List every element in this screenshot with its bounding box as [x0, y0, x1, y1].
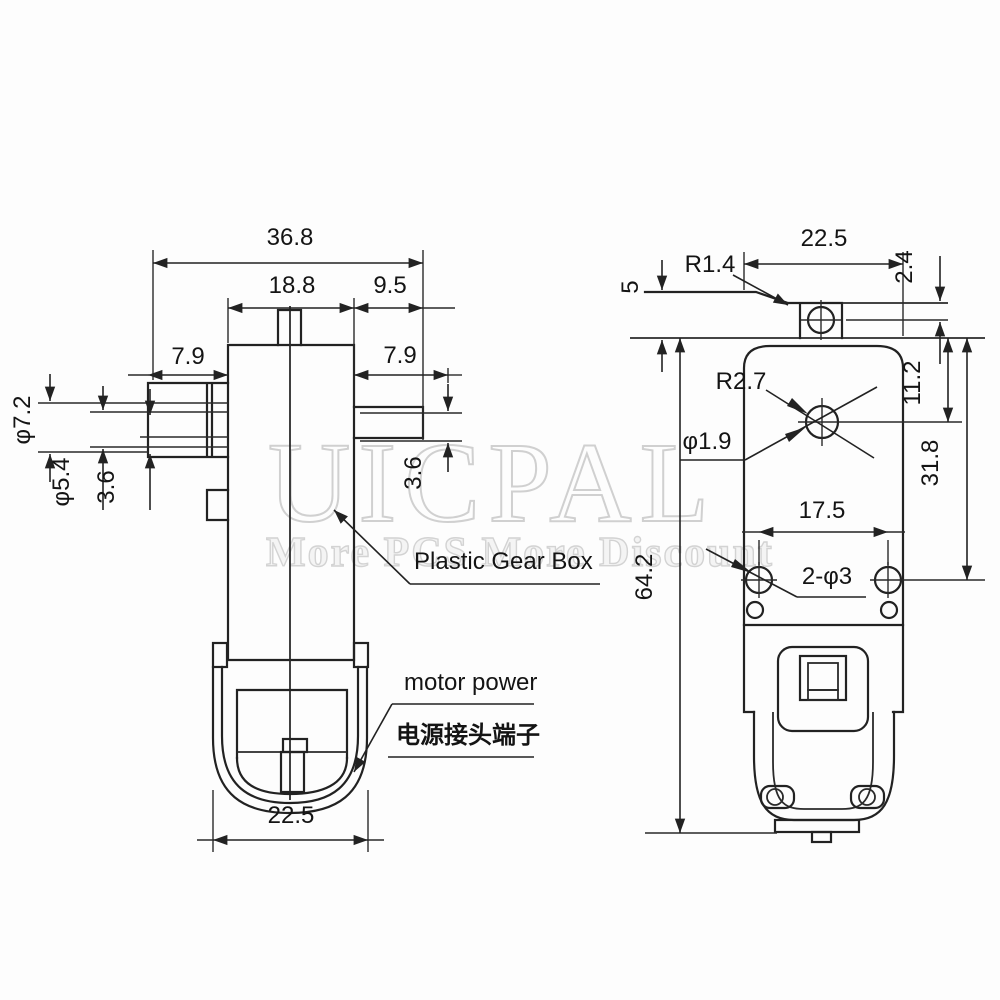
dim-body-width: 22.5	[801, 225, 848, 252]
side-view-labels: Plastic Gear Box motor power 电源接头端子	[334, 510, 600, 772]
label-motor-power-cn: 电源接头端子	[396, 722, 540, 749]
dim-shaft-flat-left: 3.6	[93, 470, 120, 503]
dim-hole-offset: 2.4	[891, 250, 918, 283]
dim-gearbox-width: 18.8	[269, 272, 316, 299]
dim-total-height: 64.2	[631, 554, 658, 601]
dim-hole-to-top: 11.2	[899, 361, 926, 406]
dim-motor-width: 22.5	[268, 802, 315, 829]
technical-drawing-canvas: UICPAL More PCS More Discount	[0, 0, 1000, 1000]
dim-shaft-flat-right: 3.6	[400, 456, 427, 489]
dim-shaft-left-length: 7.9	[171, 343, 204, 370]
dim-tab-fillet: R1.4	[685, 251, 736, 278]
dim-shaft-hole-dia: φ1.9	[683, 428, 732, 455]
dim-mount-holes: 2-φ3	[802, 563, 852, 590]
dim-shaft-right-length: 7.9	[383, 342, 416, 369]
watermark-brand: UICPAL	[268, 419, 717, 546]
dim-holes-to-top: 31.8	[917, 440, 944, 487]
dim-right-step: 9.5	[373, 272, 406, 299]
dim-corner-radius: R2.7	[716, 368, 767, 395]
label-motor-power: motor power	[404, 669, 537, 696]
label-plastic-gear-box: Plastic Gear Box	[414, 548, 593, 575]
dim-shaft-mid-dia: φ5.4	[48, 458, 75, 507]
dim-total-width: 36.8	[267, 224, 314, 251]
technical-drawing-page: UICPAL More PCS More Discount	[0, 0, 1000, 1000]
dim-shaft-outer-dia: φ7.2	[9, 396, 36, 445]
dim-hole-spacing: 17.5	[799, 497, 846, 524]
dim-tab-height: 5	[617, 280, 644, 293]
